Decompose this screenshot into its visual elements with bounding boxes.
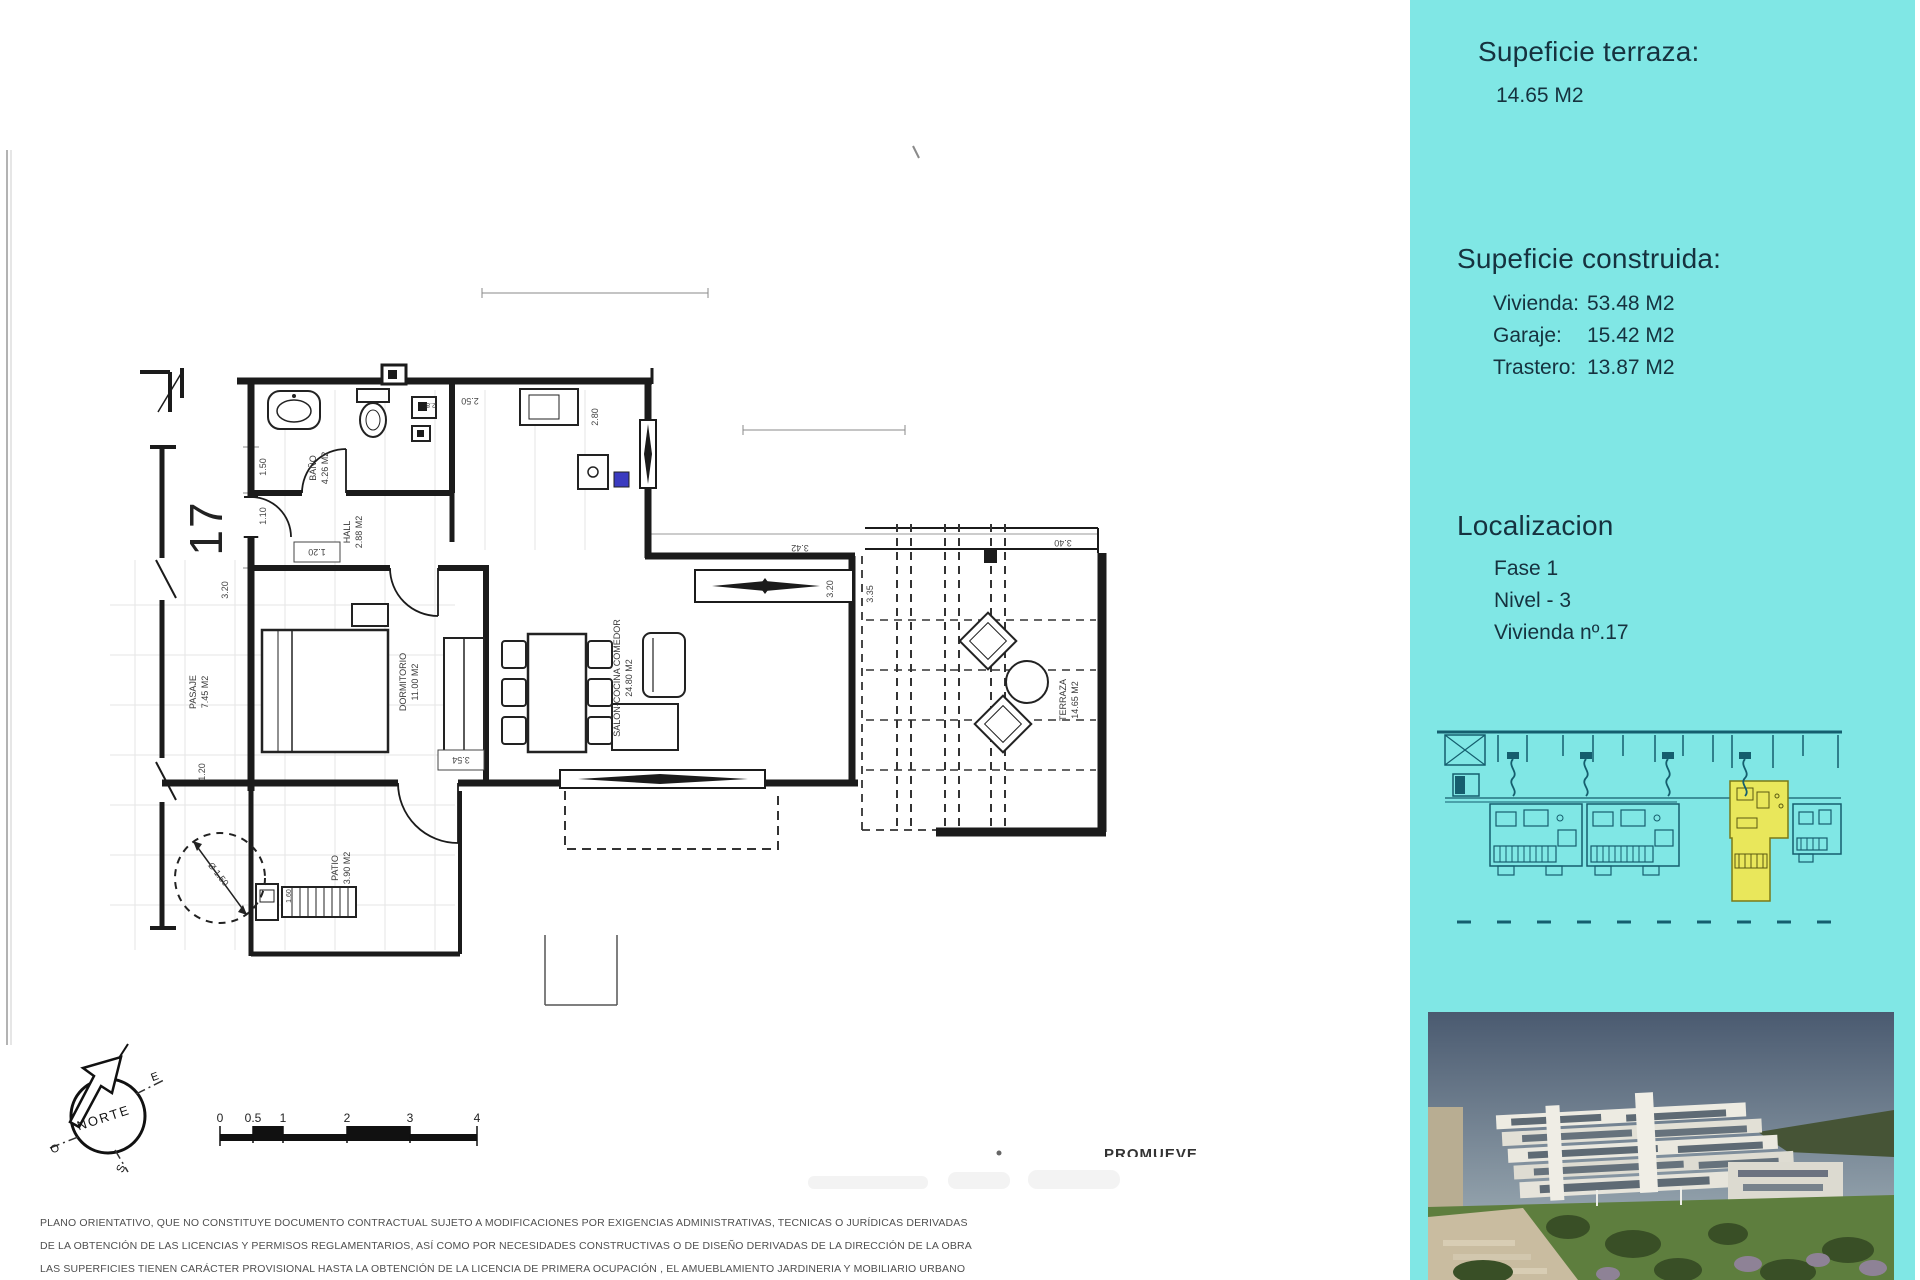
dining-table [528,634,586,752]
compass-east-label: E [149,1070,160,1084]
location-nivel: Nivel - 3 [1494,585,1629,617]
built-surface-rows: Vivienda: 53.48 M2 Garaje: 15.42 M2 Tras… [1493,288,1675,384]
scale-tick-2: 2 [344,1111,351,1125]
info-panel: Supeficie terraza: 14.65 M2 Supeficie co… [1410,0,1915,1280]
dim-passage-circle: Ø 1.50 [206,860,231,887]
highlighted-unit [1730,781,1788,901]
room-label-pasaje: PASAJE [188,675,198,709]
patio-fixtures [256,884,356,920]
floor-plan-drawing: 17 BAÑO 4.26 M2 HALL 2.88 M2 DORMITORIO … [0,0,1410,1280]
room-label-patio: PATIO [330,855,340,881]
door-marker-blue [614,472,629,487]
terrace-table [1006,661,1048,703]
room-label-hall: HALL [342,521,352,544]
room-area-hall: 2.88 M2 [354,516,364,549]
compass-rose: NORTE E O S [49,1044,164,1175]
disclaimer-line: PLANO ORIENTATIVO, QUE NO CONSTITUYE DOC… [40,1212,972,1235]
living-furniture [502,633,685,752]
bathroom-fixtures [268,389,436,441]
room-area-bano: 4.26 M2 [320,452,330,485]
scale-tick-3: 3 [407,1111,414,1125]
room-area-patio: 3.90 M2 [342,852,352,885]
legal-disclaimer: PLANO ORIENTATIVO, QUE NO CONSTITUYE DOC… [40,1212,972,1280]
room-label-salon: SALON-COCINA COMEDOR [612,619,622,737]
disclaimer-line: DE LA OBTENCIÓN DE LAS LICENCIAS Y PERMI… [40,1235,972,1258]
built-row-vivienda: Vivienda: 53.48 M2 [1493,288,1675,320]
site-plan-thumbnail [1437,726,1848,931]
dim-hall-width: 1.20 [308,547,326,557]
dim-dorm-side: 3.20 [220,581,230,599]
promoter-label: PROMUEVE [1104,1146,1198,1157]
plan-sheet: 17 BAÑO 4.26 M2 HALL 2.88 M2 DORMITORIO … [0,0,1920,1280]
bed [262,630,388,752]
scale-tick-1: 1 [280,1111,287,1125]
compass-west-label: O [49,1142,62,1156]
faint-watermark [1028,1170,1120,1189]
dim-bath-fixture: 2.8 [426,401,436,408]
building-wing [1728,1162,1843,1202]
location-heading: Localizacion [1457,510,1614,542]
built-row-trastero: Trastero: 13.87 M2 [1493,352,1675,384]
dim-terrace-depth: 3.35 [865,585,875,603]
room-area-terraza: 14.65 M2 [1070,681,1080,719]
room-label-dormitorio: DORMITORIO [398,653,408,711]
bedroom-furniture [262,604,484,752]
dim-kitchen-depth: 2.80 [590,408,600,426]
room-label-terraza: TERRAZA [1058,679,1068,721]
room-area-pasaje: 7.45 M2 [200,676,210,709]
scale-bar: 0 0.5 1 2 3 4 [217,1111,481,1146]
building-render-photo [1428,1012,1894,1280]
dim-terrace-width: 3.40 [1054,538,1072,548]
room-area-dormitorio: 11.00 M2 [410,664,420,701]
room-label-bano: BAÑO [308,455,318,481]
location-vivienda: Vivienda nº.17 [1494,617,1629,649]
dim-salon-window: 3.20 [825,580,835,598]
kitchen-fixtures [520,389,608,489]
dim-entry-width: 1.10 [258,507,268,525]
terrace-surface-heading: Supeficie terraza: [1478,36,1700,68]
page-edge-line [7,150,11,1045]
disclaimer-line: LAS SUPERFICIES TIENEN CARÁCTER PROVISIO… [40,1258,972,1280]
unit-number-label: 17 [180,500,232,555]
faint-watermark [808,1176,928,1189]
compass-south-label: S [114,1163,128,1175]
left-building [1428,1107,1463,1217]
dim-kitchen-width: 2.50 [461,396,479,406]
built-row-garaje: Garaje: 15.42 M2 [1493,320,1675,352]
faint-watermark [948,1172,1010,1189]
room-area-salon: 24.80 M2 [624,659,634,697]
dim-patio-detail: 1.60 [286,889,293,903]
dim-dorm-width: 3.54 [452,755,470,765]
dim-salon-width: 3.42 [791,543,809,553]
scale-tick-0: 0 [217,1111,224,1125]
awning-outline [565,791,778,849]
scale-tick-05: 0.5 [245,1111,262,1125]
dim-bath-height: 1.50 [258,458,268,476]
location-fase: Fase 1 [1494,553,1629,585]
planter [282,887,356,917]
toilet-tank [357,389,389,402]
dim-passage-width: 1.20 [197,763,207,781]
scale-tick-4: 4 [474,1111,481,1125]
armchair [643,633,685,697]
terrace-surface-value: 14.65 M2 [1496,84,1584,108]
location-lines: Fase 1 Nivel - 3 Vivienda nº.17 [1494,553,1629,649]
built-surface-heading: Supeficie construida: [1457,243,1721,275]
